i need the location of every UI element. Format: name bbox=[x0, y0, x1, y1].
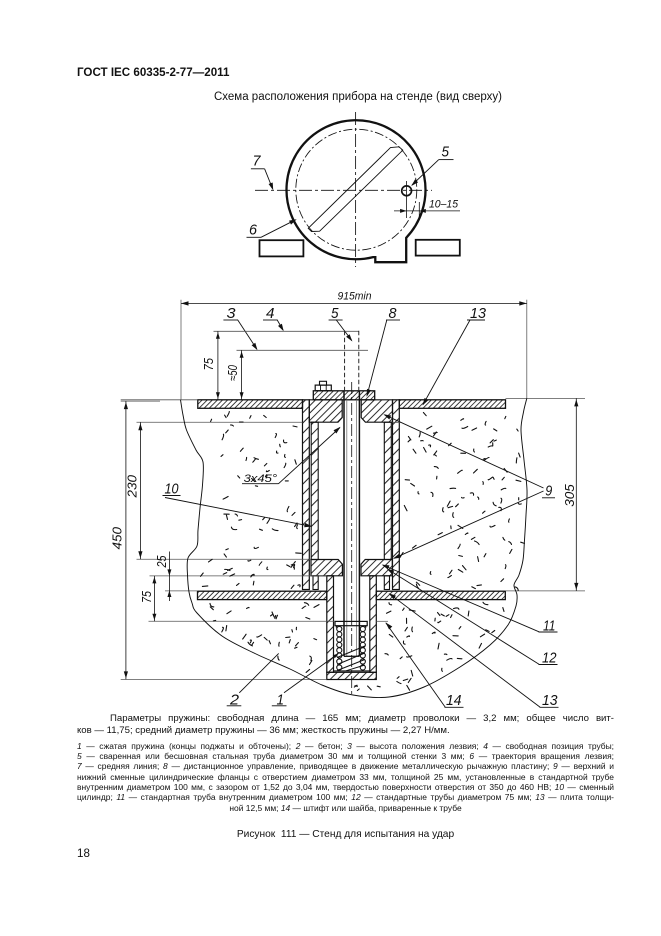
svg-text:75: 75 bbox=[140, 591, 154, 603]
svg-text:75: 75 bbox=[202, 358, 216, 371]
svg-text:915min: 915min bbox=[338, 290, 372, 302]
svg-text:4: 4 bbox=[266, 305, 275, 322]
svg-text:5: 5 bbox=[442, 143, 450, 160]
svg-text:14: 14 bbox=[446, 692, 462, 709]
svg-text:6: 6 bbox=[249, 222, 258, 239]
svg-text:3x45°: 3x45° bbox=[244, 473, 278, 485]
svg-text:13: 13 bbox=[542, 692, 558, 709]
svg-text:13: 13 bbox=[470, 305, 487, 322]
svg-text:12: 12 bbox=[542, 649, 557, 666]
svg-text:8: 8 bbox=[389, 305, 398, 322]
svg-text:3: 3 bbox=[227, 305, 237, 322]
svg-text:10–15: 10–15 bbox=[429, 199, 459, 211]
svg-text:450: 450 bbox=[111, 527, 125, 550]
svg-text:9: 9 bbox=[545, 483, 553, 500]
svg-text:5: 5 bbox=[331, 305, 339, 322]
svg-text:≈50: ≈50 bbox=[226, 365, 240, 381]
svg-text:230: 230 bbox=[125, 475, 139, 499]
svg-text:25: 25 bbox=[155, 555, 169, 568]
svg-text:305: 305 bbox=[563, 484, 577, 507]
svg-text:7: 7 bbox=[253, 153, 262, 170]
